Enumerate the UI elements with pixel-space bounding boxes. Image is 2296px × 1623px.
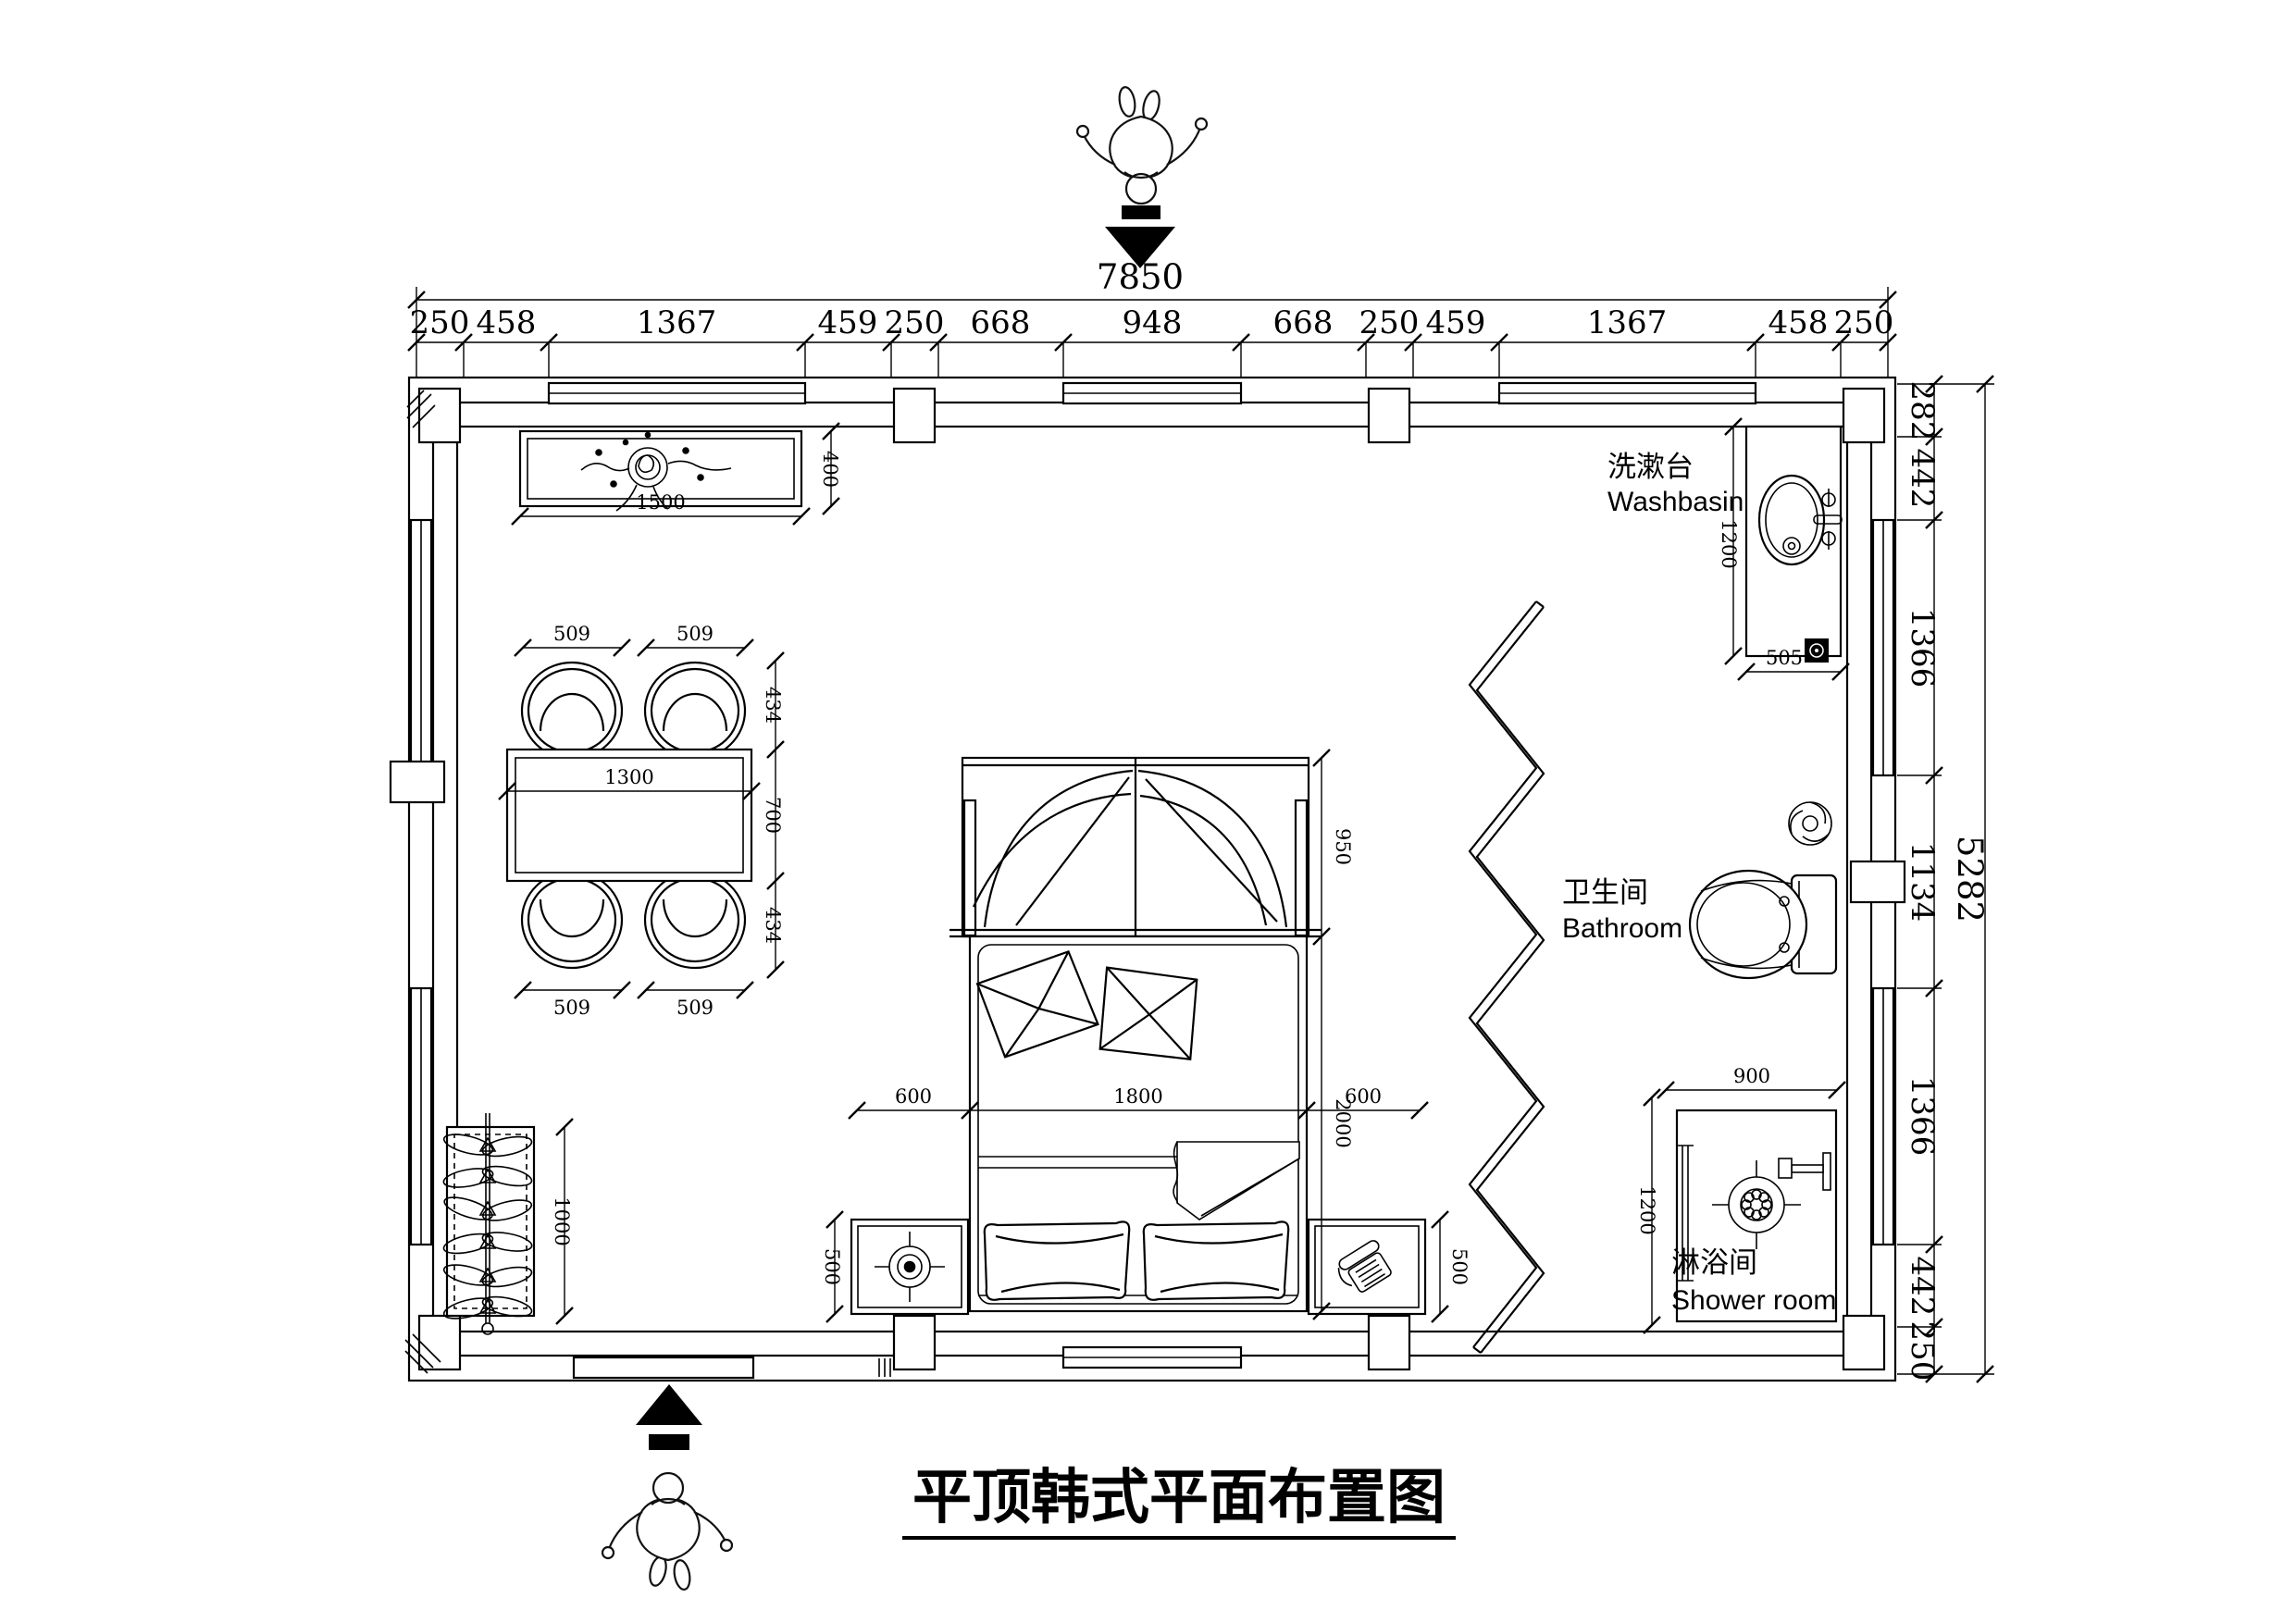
dim-shower-depth: 1200 bbox=[1636, 1185, 1658, 1234]
window-top-middle bbox=[1063, 383, 1241, 403]
dim-chair-depth-bottom: 434 bbox=[762, 907, 784, 944]
entry-arrow-bar-bottom bbox=[649, 1434, 689, 1450]
toilet-icon bbox=[1690, 871, 1836, 978]
sliding-door-leaf bbox=[574, 1357, 753, 1378]
dim-bed-length: 2000 bbox=[1332, 1098, 1354, 1147]
dim-top-0: 250 bbox=[410, 304, 470, 341]
dim-chair-w2: 509 bbox=[553, 997, 590, 1019]
dim-top-1: 458 bbox=[477, 304, 537, 341]
dim-washbasin-depth: 505 bbox=[1766, 647, 1803, 669]
dim-top-8: 250 bbox=[1359, 304, 1420, 341]
dim-right-0: 282 bbox=[1904, 381, 1941, 441]
dim-bed-width: 1800 bbox=[1113, 1085, 1162, 1108]
dim-table-width: 1300 bbox=[604, 766, 653, 788]
dim-top-5: 668 bbox=[971, 304, 1031, 341]
dim-top-2: 1367 bbox=[637, 304, 717, 341]
dim-top-6: 948 bbox=[1123, 304, 1183, 341]
label-bathroom-cn: 卫生间 bbox=[1562, 876, 1648, 909]
window-left-upper bbox=[411, 520, 431, 775]
dim-shower-width: 900 bbox=[1733, 1065, 1770, 1087]
nightstand-left bbox=[851, 1220, 968, 1314]
dim-chair-w3: 509 bbox=[676, 997, 714, 1019]
dim-table-depth: 700 bbox=[762, 797, 784, 834]
window-right-lower bbox=[1873, 988, 1893, 1245]
dim-right-5: 442 bbox=[1904, 1257, 1941, 1317]
dim-right-2: 1366 bbox=[1904, 608, 1941, 688]
dim-right-total: 5282 bbox=[1950, 836, 1990, 923]
dim-nightstand-right: 500 bbox=[1448, 1248, 1471, 1285]
dim-wardrobe-length: 1000 bbox=[551, 1196, 573, 1245]
bed-headboard bbox=[949, 758, 1322, 936]
dim-top-12: 250 bbox=[1834, 304, 1894, 341]
drawing-title: 平顶韩式平面布置图 bbox=[902, 1464, 1456, 1538]
dim-right-4: 1366 bbox=[1904, 1076, 1941, 1157]
dim-console-width: 1500 bbox=[636, 491, 685, 514]
page-title: 平顶韩式平面布置图 bbox=[912, 1464, 1446, 1530]
dim-top-9: 459 bbox=[1426, 304, 1486, 341]
window-top-left bbox=[549, 383, 805, 403]
window-bottom-middle bbox=[1063, 1347, 1241, 1368]
dim-nightstand-left: 500 bbox=[821, 1248, 843, 1285]
dim-top-4: 250 bbox=[885, 304, 945, 341]
dim-top-11: 458 bbox=[1769, 304, 1829, 341]
dim-top-3: 459 bbox=[818, 304, 878, 341]
entry-arrow-bar-top bbox=[1122, 205, 1160, 219]
dim-right-3: 1134 bbox=[1904, 842, 1941, 923]
dim-bed-headboard: 950 bbox=[1332, 828, 1354, 865]
dim-console-depth: 400 bbox=[819, 451, 841, 488]
window-right-upper bbox=[1873, 520, 1893, 775]
floor-drain-square-icon bbox=[1805, 638, 1829, 663]
dim-washbasin-length: 1200 bbox=[1718, 519, 1740, 568]
nightstand-right bbox=[1309, 1220, 1425, 1314]
dim-top-7: 668 bbox=[1273, 304, 1334, 341]
label-shower-en: Shower room bbox=[1671, 1285, 1836, 1316]
dim-chair-depth-top: 434 bbox=[762, 687, 784, 724]
dim-top-10: 1367 bbox=[1587, 304, 1668, 341]
dim-bed-gap-left: 600 bbox=[895, 1085, 932, 1108]
window-top-right bbox=[1499, 383, 1756, 403]
label-washbasin-en: Washbasin bbox=[1607, 487, 1744, 517]
label-bathroom-en: Bathroom bbox=[1562, 913, 1682, 944]
dim-right-1: 442 bbox=[1904, 449, 1941, 509]
dim-right-6: 250 bbox=[1904, 1321, 1941, 1381]
label-washbasin-cn: 洗漱台 bbox=[1607, 451, 1694, 483]
dim-chair-w0: 509 bbox=[553, 623, 590, 645]
window-left-lower bbox=[411, 988, 431, 1245]
floor-plan-page: 7850 250 458 1367 459 250 668 948 668 25… bbox=[0, 0, 2296, 1623]
label-shower-cn: 淋浴间 bbox=[1671, 1246, 1757, 1279]
dim-chair-w1: 509 bbox=[676, 623, 714, 645]
